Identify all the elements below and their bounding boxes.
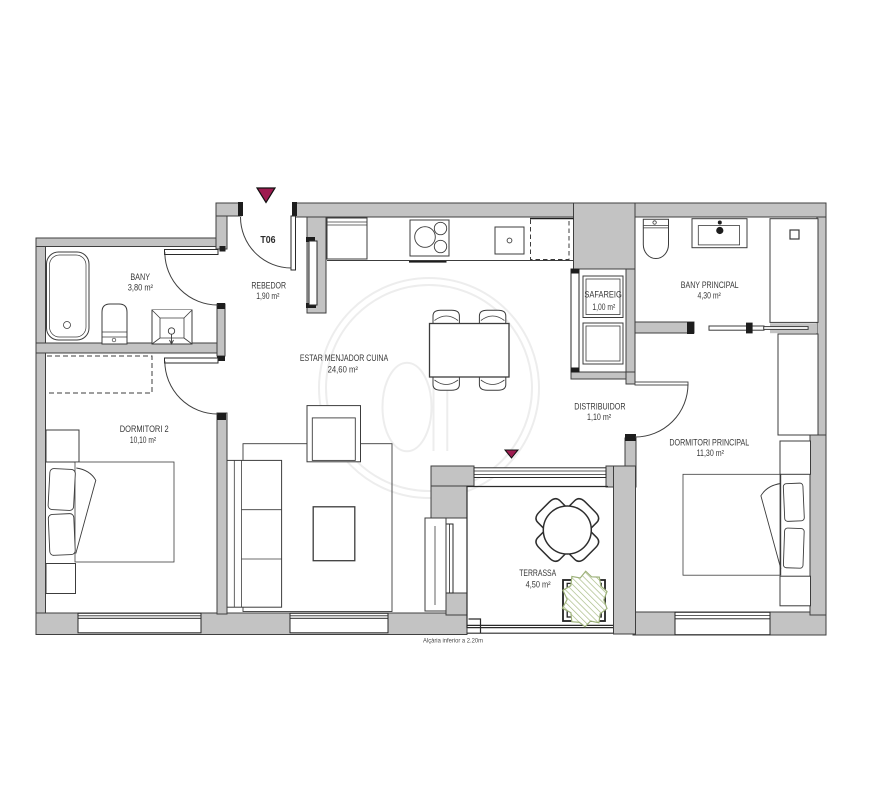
svg-text:3,80 m²: 3,80 m²: [128, 282, 153, 292]
svg-text:BANY: BANY: [130, 272, 150, 282]
svg-text:10,10 m²: 10,10 m²: [130, 435, 156, 445]
svg-text:11,30 m²: 11,30 m²: [697, 448, 724, 458]
svg-text:REBEDOR: REBEDOR: [251, 281, 286, 291]
svg-text:Alçària inferior a 2.20m: Alçària inferior a 2.20m: [423, 638, 483, 645]
svg-text:24,60 m²: 24,60 m²: [328, 365, 358, 375]
svg-text:BANY PRINCIPAL: BANY PRINCIPAL: [681, 280, 739, 290]
svg-text:DORMITORI 2: DORMITORI 2: [120, 424, 169, 434]
svg-text:ESTAR MENJADOR CUINA: ESTAR MENJADOR CUINA: [300, 353, 388, 363]
svg-text:DORMITORI PRINCIPAL: DORMITORI PRINCIPAL: [669, 438, 749, 448]
svg-text:1,00 m²: 1,00 m²: [592, 302, 615, 312]
svg-text:4,50 m²: 4,50 m²: [526, 579, 551, 589]
svg-text:1,90 m²: 1,90 m²: [256, 291, 279, 301]
svg-text:1,10 m²: 1,10 m²: [587, 412, 611, 422]
svg-text:DISTRIBUIDOR: DISTRIBUIDOR: [574, 402, 626, 412]
svg-text:4,30 m²: 4,30 m²: [698, 291, 721, 301]
svg-text:TERRASSA: TERRASSA: [519, 568, 556, 578]
svg-text:T06: T06: [260, 235, 276, 246]
svg-text:SAFAREIG: SAFAREIG: [584, 289, 622, 299]
